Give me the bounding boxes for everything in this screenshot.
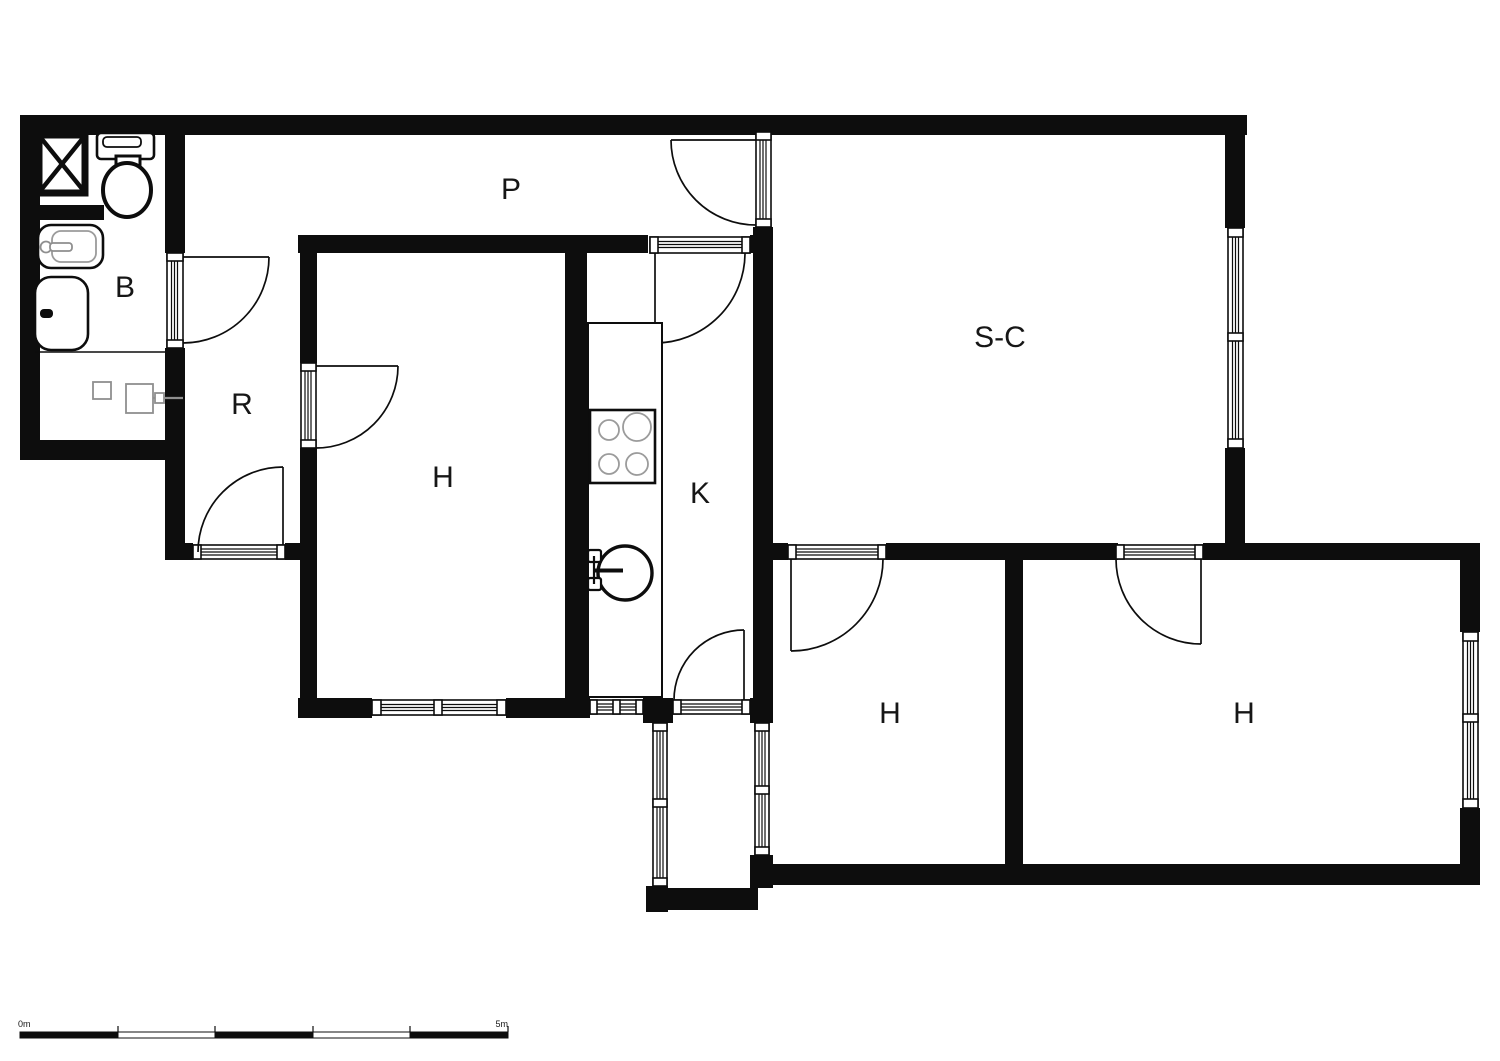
scale-start-label: 0m — [18, 1019, 31, 1029]
wall-bath-right-upper — [165, 135, 185, 253]
wall-right-top — [1203, 543, 1480, 560]
scale-end-label: 5m — [495, 1019, 508, 1029]
washbasin-icon — [38, 225, 103, 268]
floor-plan-drawing: P B R H K S-C H H 0m 5m — [0, 0, 1500, 1061]
door-balcony — [673, 630, 750, 714]
wall-spine — [753, 227, 773, 700]
wall-post-midh-door — [770, 543, 788, 560]
scale-segment — [20, 1032, 118, 1038]
wall-hk-top-left — [298, 235, 648, 253]
scale-bar: 0m 5m — [18, 1019, 508, 1038]
label-vestibule: R — [231, 388, 253, 421]
door-bathroom — [167, 253, 269, 348]
window-kitchen-small — [590, 700, 643, 714]
label-kitchen: K — [690, 477, 710, 510]
door-kitchen — [650, 237, 750, 343]
toilet-icon — [97, 133, 154, 217]
wall-mid-horizontal — [886, 543, 1118, 560]
label-bedroom-left: H — [432, 461, 454, 494]
scale-segment — [215, 1032, 313, 1038]
scale-segment — [313, 1032, 410, 1038]
wall-entrance-left — [165, 543, 193, 560]
label-bathroom: B — [115, 271, 135, 304]
wall-balcony-bottom — [646, 888, 758, 910]
window-balcony-right — [755, 723, 769, 855]
door-bedroom-middle — [788, 545, 886, 651]
wall-bedroom-divider — [1005, 560, 1023, 864]
room-labels: P B R H K S-C H H — [115, 173, 1255, 730]
wall-sc-right-lower — [1225, 448, 1245, 543]
wall-h-left-upper — [300, 253, 317, 363]
wall-shower-partition — [36, 205, 104, 220]
door-hallway-livingroom — [671, 132, 771, 227]
wall-h-bottom-mid — [506, 698, 590, 718]
wall-top — [20, 115, 1247, 135]
wall-rh-right-lower — [1460, 808, 1480, 884]
window-living-room — [1228, 228, 1243, 448]
wall-bath-right-lower — [165, 348, 185, 560]
window-bedroom-left — [372, 700, 506, 715]
scale-segment — [410, 1032, 508, 1038]
window-balcony-left — [653, 723, 667, 886]
label-hallway: P — [501, 173, 521, 206]
wall-bedrooms-bottom — [753, 864, 1480, 885]
wall-post-balcony-doorleft — [643, 698, 673, 723]
door-bedroom-right — [1116, 545, 1203, 644]
door-entrance — [193, 467, 285, 559]
window-bedroom-right — [1463, 632, 1478, 808]
door-vestibule-bedroom — [301, 363, 398, 448]
shower-icon — [39, 135, 85, 193]
floor-plan-page: P B R H K S-C H H 0m 5m — [0, 0, 1500, 1061]
label-bedroom-middle: H — [879, 697, 901, 730]
label-bedroom-right: H — [1233, 697, 1255, 730]
doors — [167, 132, 1203, 714]
wall-sc-right-upper — [1225, 135, 1245, 228]
kitchen-counter — [588, 323, 662, 697]
wall-h-left-lower — [300, 448, 317, 718]
wall-h-bottom-left — [298, 698, 372, 718]
stove-icon — [590, 410, 655, 483]
wall-post-balcony-doorright — [750, 698, 773, 723]
scale-segment — [118, 1032, 215, 1038]
wall-k-left — [565, 235, 587, 698]
wall-rh-right-upper — [1460, 560, 1480, 632]
label-living-room: S-C — [974, 321, 1026, 354]
walls — [20, 115, 1480, 912]
bathtub-icon — [35, 277, 88, 350]
wall-bath-bottom — [20, 440, 182, 460]
